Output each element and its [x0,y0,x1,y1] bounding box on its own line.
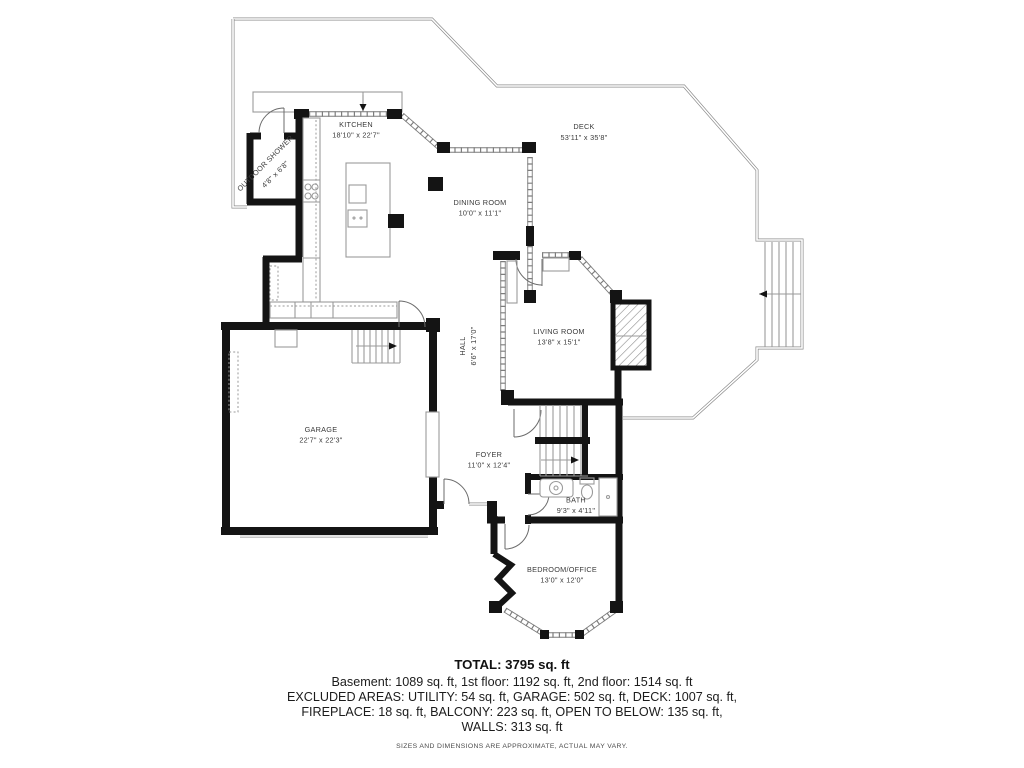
label-dining-dims: 10'0" x 11'1" [459,209,502,218]
label-bath: BATH [566,496,586,505]
label-hall-dims: 6'6" x 17'0" [469,326,478,365]
kitchen-column [388,177,443,228]
summary-floors: Basement: 1089 sq. ft, 1st floor: 1192 s… [332,675,694,689]
garage-stairs [352,330,400,363]
summary-disclaimer: SIZES AND DIMENSIONS ARE APPROXIMATE, AC… [396,743,628,750]
label-kitchen-dims: 18'10" x 22'7" [332,131,380,140]
summary-walls: WALLS: 313 sq. ft [461,720,563,734]
kitchen-island [346,163,390,257]
fireplace [613,302,649,368]
label-deck-dims: 53'11" x 35'8" [560,133,607,142]
label-garage-dims: 22'7" x 22'3" [299,436,342,445]
label-foyer-dims: 11'0" x 12'4" [468,461,511,470]
summary-excluded-2: FIREPLACE: 18 sq. ft, BALCONY: 223 sq. f… [301,705,722,719]
walls [221,109,623,639]
label-deck: DECK [573,122,594,131]
label-living: LIVING ROOM [533,327,584,336]
garage-foyer-opening [426,412,439,477]
floorplan-page: KITCHEN 18'10" x 22'7" DECK 53'11" x 35'… [0,0,1024,768]
floorplan-svg: KITCHEN 18'10" x 22'7" DECK 53'11" x 35'… [0,0,1024,768]
summary-total: TOTAL: 3795 sq. ft [454,657,570,672]
area-summary: TOTAL: 3795 sq. ft Basement: 1089 sq. ft… [287,657,737,750]
room-labels: KITCHEN 18'10" x 22'7" DECK 53'11" x 35'… [235,120,607,585]
label-hall: HALL [458,336,467,355]
deck-stairs [759,242,801,347]
label-garage: GARAGE [305,425,338,434]
label-dining: DINING ROOM [453,198,506,207]
label-bedroom-office-dims: 13'0" x 12'0" [540,576,583,585]
summary-excluded-1: EXCLUDED AREAS: UTILITY: 54 sq. ft, GARA… [287,690,737,704]
label-living-dims: 13'8" x 15'1" [537,338,580,347]
shower-stall [599,478,617,516]
label-foyer: FOYER [476,450,502,459]
label-bedroom-office: BEDROOM/OFFICE [527,565,597,574]
garage-workbench [229,330,297,412]
label-bath-dims: 9'3" x 4'11" [557,506,596,515]
label-kitchen: KITCHEN [339,120,373,129]
